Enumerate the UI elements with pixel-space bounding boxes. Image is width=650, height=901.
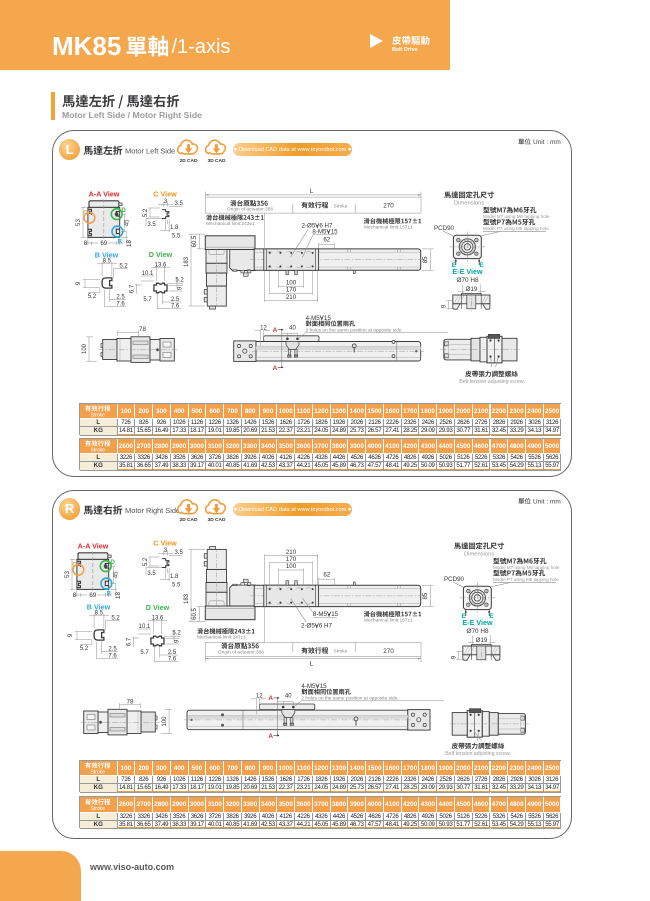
svg-text:L: L [310,660,314,667]
svg-text:Mechanical limit:157±1: Mechanical limit:157±1 [364,618,413,624]
svg-text:85: 85 [423,256,429,263]
svg-text:Stroke: Stroke [90,806,105,812]
svg-text:62: 62 [323,237,330,244]
svg-text:Mechanical limit:243±1: Mechanical limit:243±1 [206,221,255,227]
svg-text:Unit : mm: Unit : mm [533,499,561,506]
svg-text:270: 270 [383,648,394,655]
svg-text:100: 100 [286,279,297,286]
svg-text:Mechanical limit:157±1: Mechanical limit:157±1 [364,224,413,230]
svg-text:8-M5: 8-M5 [312,228,327,235]
svg-text:183: 183 [184,256,190,267]
svg-text:Belt tension adjusting screw.: Belt tension adjusting screw. [445,751,510,757]
svg-text:270: 270 [383,203,394,210]
svg-text:2-Ø5: 2-Ø5 [301,623,315,630]
svg-text:Stroke: Stroke [90,447,105,453]
svg-text:170: 170 [286,287,297,294]
svg-text:100: 100 [82,343,88,354]
svg-text:6 H7: 6 H7 [319,623,333,630]
svg-text:100: 100 [286,563,297,570]
svg-text:L: L [310,188,314,195]
svg-text:Origin of actuator:356: Origin of actuator:356 [227,207,273,213]
svg-text:Belt tension adjusting screw.: Belt tension adjusting screw. [459,379,524,385]
svg-text:170: 170 [286,556,297,563]
svg-text:62: 62 [323,571,330,578]
svg-text:15: 15 [331,228,338,235]
svg-text:Stroke: Stroke [334,649,348,655]
svg-text:78: 78 [127,698,134,705]
svg-text:60.5: 60.5 [192,608,198,620]
svg-text:210: 210 [286,549,297,556]
svg-text:183: 183 [184,593,190,604]
svg-text:Motor Right Side: Motor Right Side [125,506,180,515]
svg-text:78: 78 [139,326,146,333]
svg-text:Stroke: Stroke [90,769,105,775]
svg-text:Unit : mm: Unit : mm [533,139,561,146]
svg-text:85: 85 [423,592,429,599]
svg-text:Origin of actuator:356: Origin of actuator:356 [218,650,264,656]
svg-text:60.5: 60.5 [192,235,198,247]
svg-text:Stroke: Stroke [334,203,348,209]
svg-text:210: 210 [286,294,297,301]
svg-text:Mechanical limit:243±1: Mechanical limit:243±1 [197,635,246,641]
svg-text:100: 100 [162,716,168,727]
svg-text:Stroke: Stroke [90,412,105,418]
svg-text:Motor Left Side: Motor Left Side [125,147,175,156]
